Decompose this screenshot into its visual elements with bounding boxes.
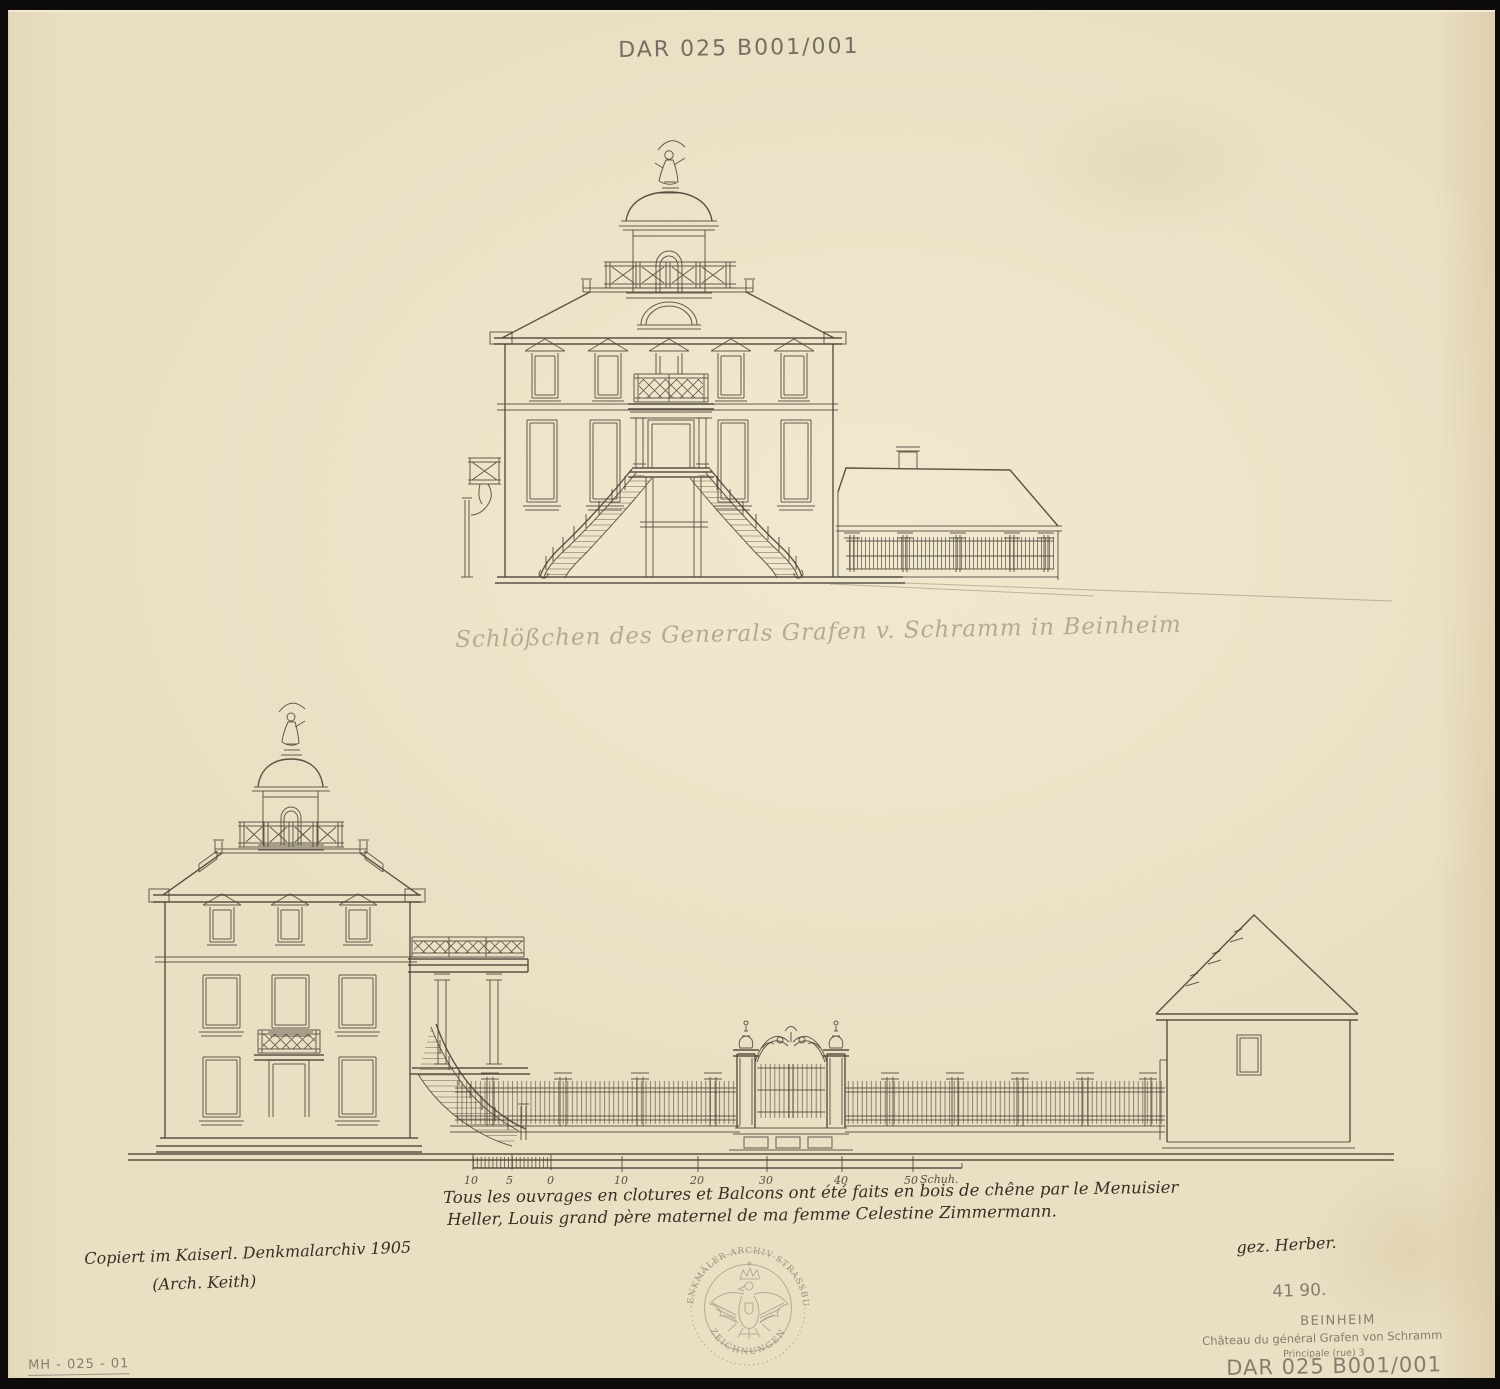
top-elevation-drawing	[461, 141, 1392, 601]
cupola-dome	[619, 192, 719, 230]
cupola-statue	[279, 703, 305, 755]
bottom-elevation-drawing	[128, 703, 1394, 1160]
archive-code-bottom: DAR 025 B001/001	[1226, 1352, 1442, 1380]
annex-building	[830, 447, 1094, 596]
main-floor-windows	[523, 420, 815, 510]
scale-label: 10	[464, 1174, 478, 1187]
outbuilding	[1156, 915, 1358, 1148]
scale-label: 5	[506, 1174, 513, 1187]
scanned-archival-drawing: { "page": { "archive_code_top": "DAR 025…	[0, 0, 1500, 1389]
inventory-code: MH - 025 - 01	[28, 1356, 130, 1376]
string-course	[155, 957, 417, 962]
building-plinth	[156, 1138, 422, 1152]
scale-label: 0	[547, 1174, 554, 1187]
architectural-drawing-layer: 10 5 0 10 20 30 40 50 Schuh. KAIS. DENKM…	[0, 0, 1500, 1389]
cupola-statue	[655, 141, 685, 193]
ornate-gate	[729, 1021, 853, 1150]
garden-fence-right	[845, 1073, 1165, 1132]
ground-extension-line	[905, 583, 1392, 601]
roof-balustrade	[238, 822, 344, 847]
svg-text:ZEICHNUNGEN: ZEICHNUNGEN	[707, 1327, 788, 1358]
stamp-arc-text-bottom: ZEICHNUNGEN	[707, 1327, 788, 1358]
archive-code-top: DAR 025 B001/001	[618, 34, 860, 63]
roof-balustrade	[604, 262, 736, 288]
mansard-roof	[490, 279, 846, 344]
number-note: 41 90.	[1272, 1280, 1327, 1302]
lower-floor-windows	[199, 1057, 380, 1125]
upper-floor-windows	[199, 975, 380, 1036]
cupola-dome	[252, 759, 330, 791]
garden-fence-left	[450, 1073, 740, 1132]
ground-line	[128, 1154, 1394, 1160]
side-balcony	[461, 458, 501, 577]
entrance-door	[628, 412, 714, 577]
copy-note-line2: (Arch. Keith)	[152, 1271, 257, 1294]
location-title: BEINHEIM	[1300, 1313, 1376, 1329]
imperial-eagle-icon	[710, 1261, 788, 1339]
mansard-roof	[149, 840, 425, 902]
center-balcony	[254, 1030, 324, 1117]
